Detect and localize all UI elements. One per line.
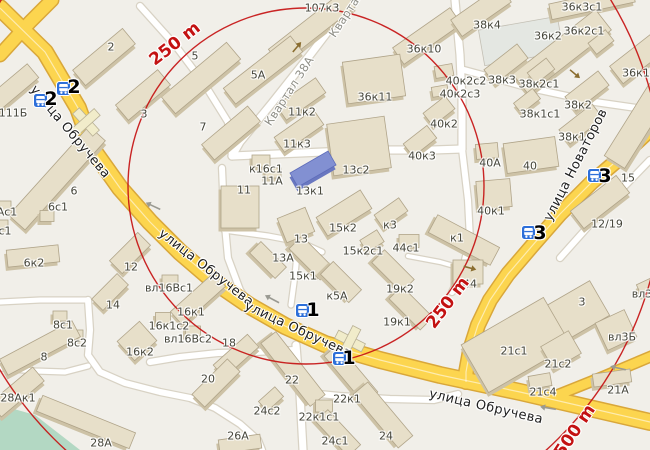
building[interactable] <box>162 275 178 285</box>
bus-icon <box>588 169 601 182</box>
building[interactable] <box>476 179 512 210</box>
building[interactable] <box>316 400 333 412</box>
bus-icon <box>522 226 535 239</box>
transit-stop-marker[interactable] <box>333 352 346 365</box>
building[interactable] <box>0 201 11 211</box>
building[interactable] <box>399 235 419 248</box>
bus-icon <box>333 352 346 365</box>
building[interactable] <box>156 313 171 324</box>
building[interactable] <box>53 311 67 321</box>
transit-stop-marker[interactable] <box>57 82 70 95</box>
building[interactable] <box>327 116 392 176</box>
map-canvas[interactable]: 107к35А2537111Б36к1036к1111к211к336к3с13… <box>0 0 650 450</box>
transit-stop-marker[interactable] <box>588 169 601 182</box>
building[interactable] <box>265 168 281 178</box>
transit-stop-marker[interactable] <box>296 304 309 317</box>
bus-icon <box>34 94 47 107</box>
road-minor <box>0 300 88 302</box>
map-base-layer <box>0 0 650 450</box>
building[interactable] <box>0 220 8 228</box>
building[interactable] <box>221 186 259 228</box>
building[interactable] <box>40 211 54 222</box>
building[interactable] <box>342 54 405 104</box>
building[interactable] <box>252 155 270 167</box>
bus-icon <box>57 82 70 95</box>
bus-icon <box>296 304 309 317</box>
transit-stop-marker[interactable] <box>34 94 47 107</box>
transit-stop-marker[interactable] <box>522 226 535 239</box>
